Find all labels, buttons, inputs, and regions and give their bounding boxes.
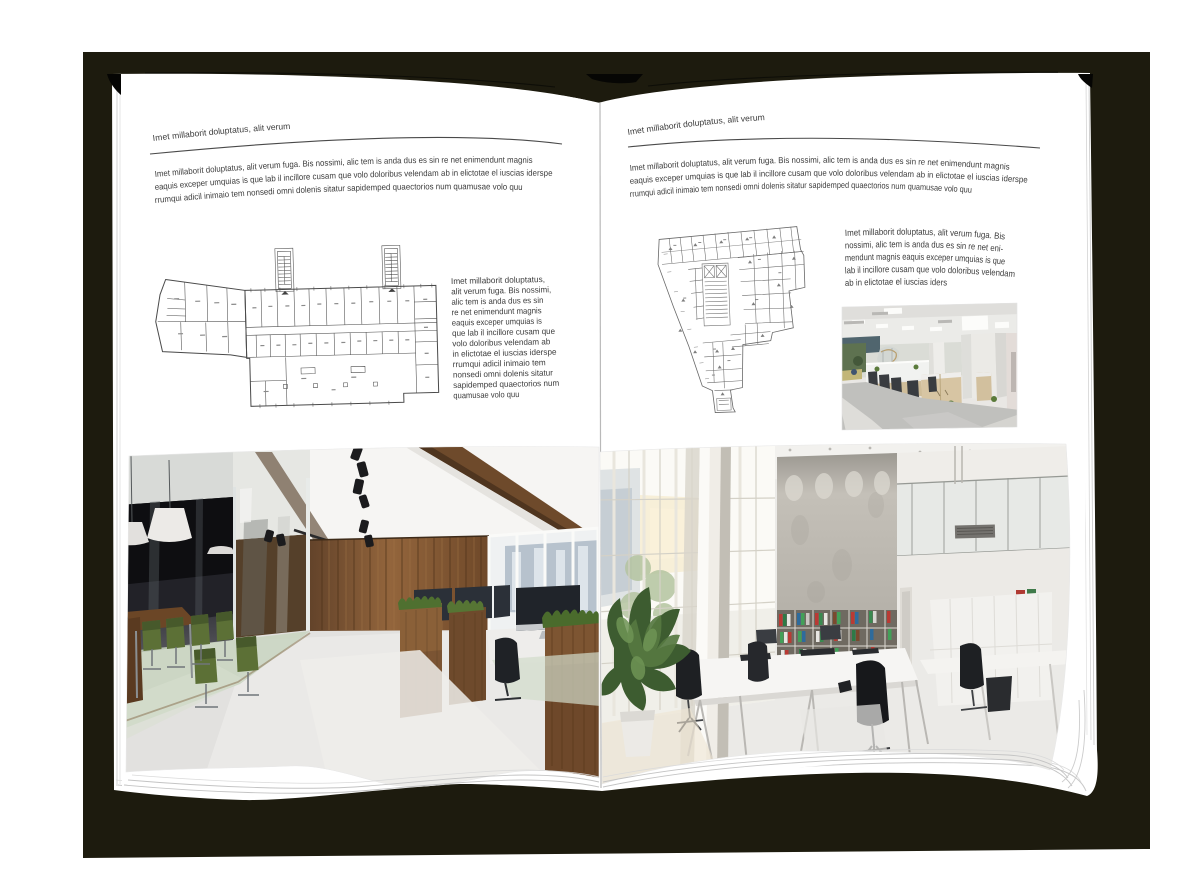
svg-text:quamusae volo quu: quamusae volo quu (453, 389, 519, 400)
svg-text:ab in elictotae el iuscias ide: ab in elictotae el iuscias iders (845, 277, 948, 288)
